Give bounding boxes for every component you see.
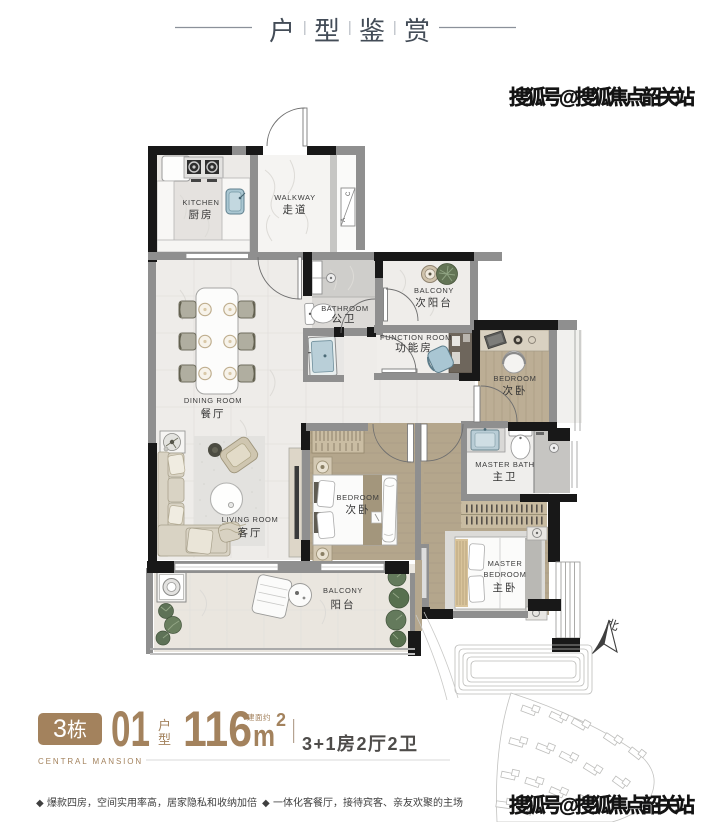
svg-text:功能房: 功能房	[395, 341, 433, 354]
svg-text:次卧: 次卧	[346, 503, 371, 516]
svg-text:116: 116	[183, 701, 252, 757]
svg-text:m: m	[253, 718, 275, 753]
svg-text:◆: ◆	[262, 798, 270, 809]
svg-text:厨房: 厨房	[189, 208, 214, 221]
svg-text:主卫: 主卫	[493, 471, 518, 483]
svg-text:公卫: 公卫	[332, 313, 357, 325]
svg-text:01: 01	[111, 701, 150, 757]
svg-text:BALCONY: BALCONY	[414, 286, 454, 295]
svg-text:BEDROOM: BEDROOM	[484, 570, 527, 579]
svg-text:次卧: 次卧	[503, 384, 528, 397]
svg-text:搜狐号@搜狐焦点韶关站: 搜狐号@搜狐焦点韶关站	[509, 85, 695, 109]
svg-text:客厅: 客厅	[238, 526, 263, 539]
svg-text:一体化客餐厅，接待宾客、亲友欢聚的主场: 一体化客餐厅，接待宾客、亲友欢聚的主场	[273, 796, 463, 809]
svg-text:WALKWAY: WALKWAY	[274, 193, 315, 202]
svg-text:BALCONY: BALCONY	[323, 586, 363, 595]
svg-text:3栋: 3栋	[53, 715, 87, 743]
svg-text:爆款四房，空间实用率高，居家隐私和收纳加倍: 爆款四房，空间实用率高，居家隐私和收纳加倍	[47, 796, 257, 809]
svg-text:MASTER BATH: MASTER BATH	[475, 460, 534, 469]
svg-text:鉴: 鉴	[359, 16, 385, 46]
svg-text:型: 型	[314, 16, 340, 46]
svg-text:型: 型	[158, 732, 171, 747]
svg-text:BATHROOM: BATHROOM	[321, 304, 369, 313]
svg-text:CENTRAL MANSION: CENTRAL MANSION	[38, 757, 143, 766]
svg-text:主卧: 主卧	[493, 581, 518, 594]
svg-text:FUNCTION ROOM: FUNCTION ROOM	[380, 333, 452, 342]
svg-text:走道: 走道	[283, 203, 308, 216]
svg-text:KITCHEN: KITCHEN	[182, 198, 219, 207]
svg-text:BEDROOM: BEDROOM	[337, 493, 380, 502]
svg-text:◆: ◆	[36, 798, 44, 809]
svg-text:BEDROOM: BEDROOM	[494, 374, 537, 383]
svg-text:MASTER: MASTER	[488, 559, 523, 568]
svg-text:阳台: 阳台	[331, 598, 356, 611]
svg-text:2: 2	[276, 710, 286, 730]
svg-text:A: A	[341, 218, 347, 222]
svg-text:赏: 赏	[404, 16, 430, 46]
svg-text:餐厅: 餐厅	[201, 407, 226, 420]
svg-text:3+1房2厅2卫: 3+1房2厅2卫	[302, 733, 419, 754]
svg-text:次阳台: 次阳台	[415, 296, 453, 309]
svg-text:搜狐号@搜狐焦点韶关站: 搜狐号@搜狐焦点韶关站	[509, 793, 695, 817]
svg-text:LIVING ROOM: LIVING ROOM	[222, 515, 279, 524]
svg-text:C: C	[346, 191, 352, 196]
svg-text:户: 户	[269, 16, 295, 46]
svg-text:户: 户	[158, 718, 171, 733]
svg-text:DINING ROOM: DINING ROOM	[184, 396, 242, 405]
